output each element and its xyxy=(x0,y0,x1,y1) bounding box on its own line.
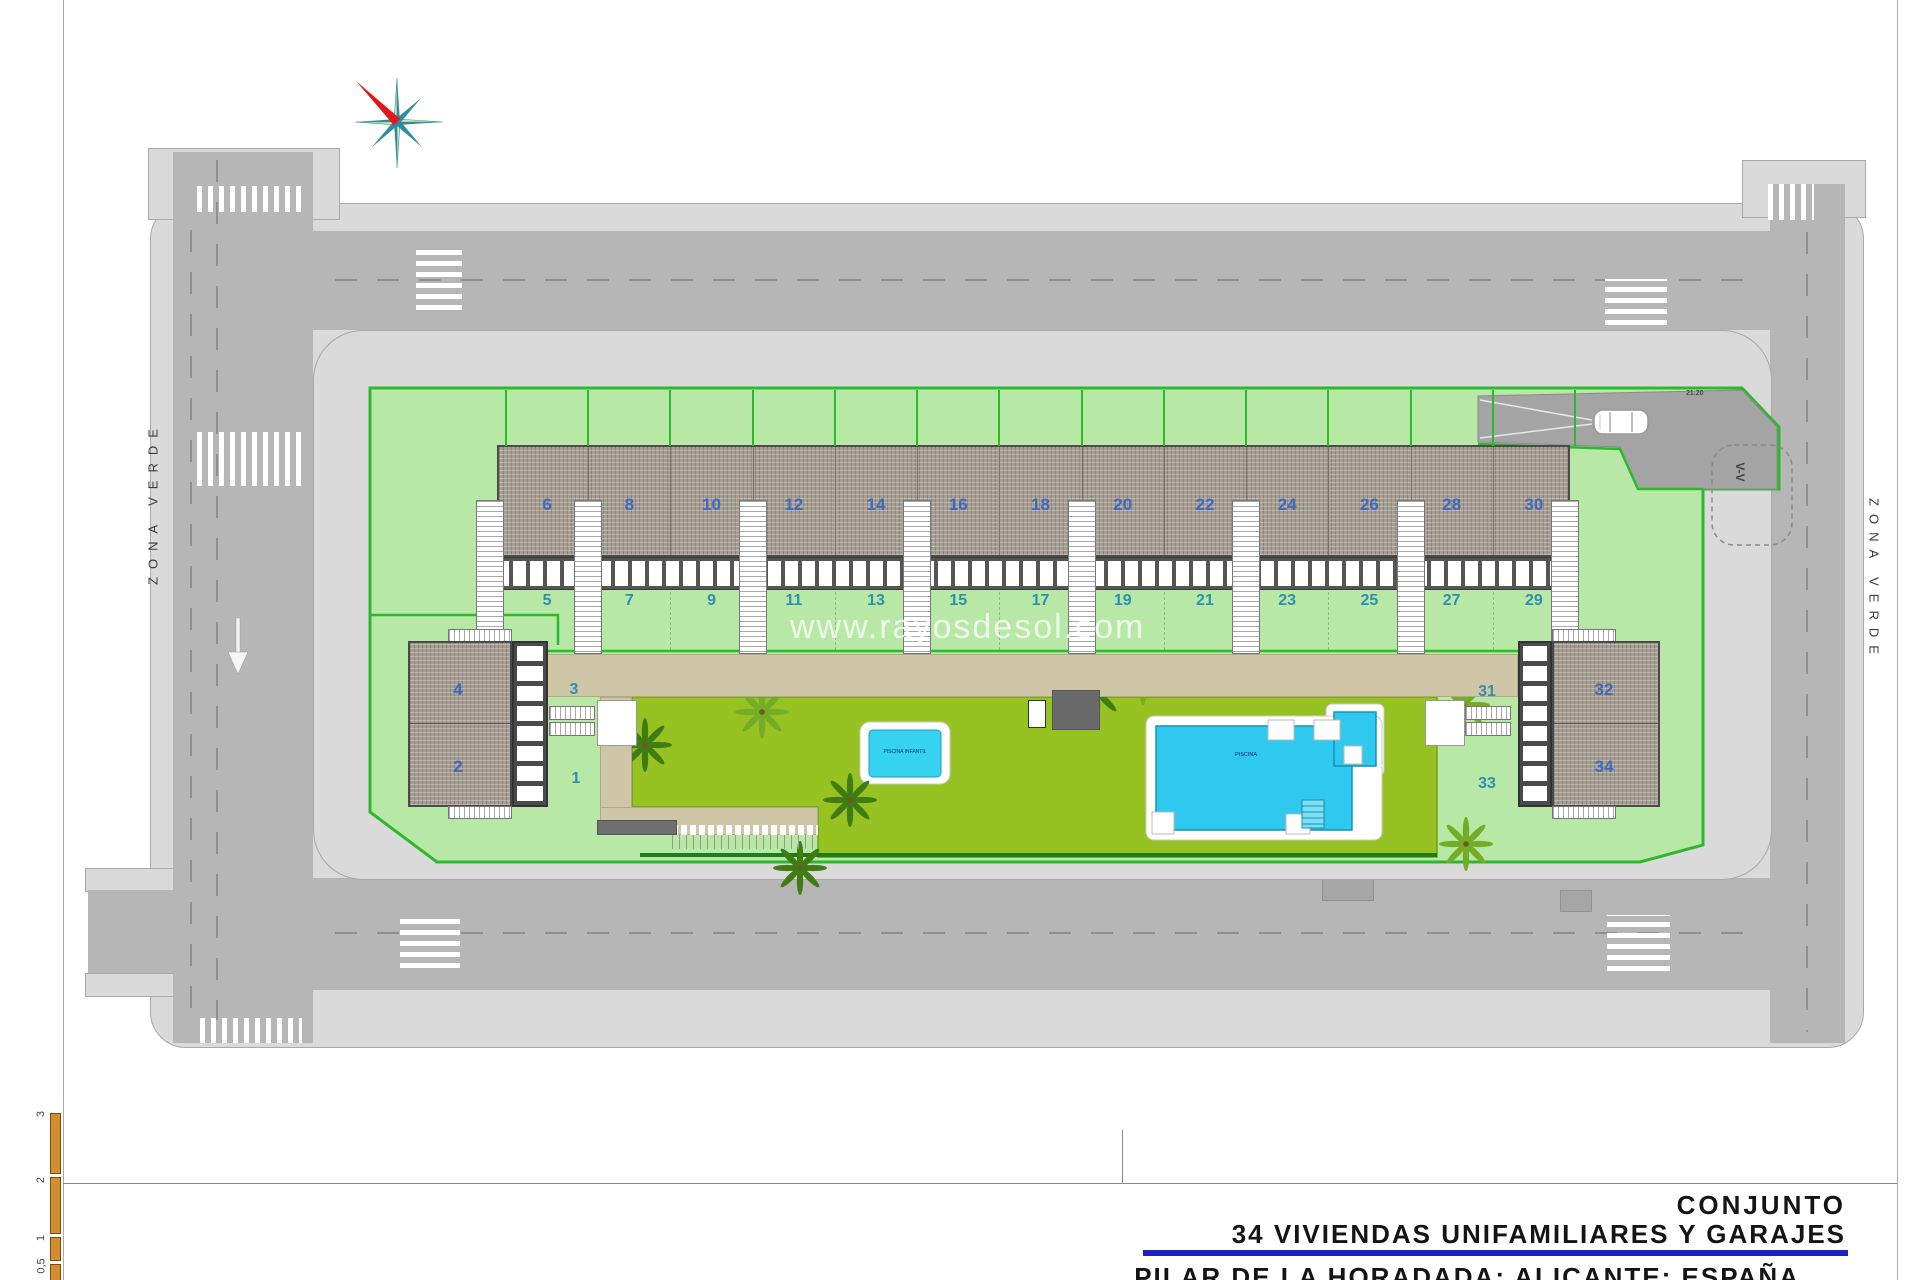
car-icon xyxy=(1594,410,1648,434)
palm-tree-icon xyxy=(1439,817,1493,871)
canopy-structure xyxy=(597,820,677,835)
parcel-number: 33 xyxy=(1478,775,1496,793)
unit-number: 32 xyxy=(1595,680,1614,700)
page-border-left xyxy=(63,0,64,1280)
compass-rose-icon xyxy=(353,78,443,168)
parcel-number: 1 xyxy=(572,770,581,788)
palm-tree-icon xyxy=(823,773,877,827)
shower-box xyxy=(1028,700,1046,728)
terrace-cells xyxy=(496,561,1572,586)
pool-large-label: PISCINA xyxy=(1235,752,1257,758)
section-marker-label: V-V xyxy=(1733,462,1747,481)
title-line-3: PILAR DE LA HORADADA; ALICANTE; ESPAÑA xyxy=(1134,1262,1800,1280)
stairs-left-block-bottom xyxy=(448,806,512,819)
direction-arrow-icon xyxy=(228,618,248,674)
building-right-block xyxy=(1552,641,1660,807)
building-left-divider xyxy=(410,723,510,724)
scale-segment xyxy=(50,1264,61,1280)
scale-label: 1 xyxy=(35,1235,47,1241)
garage-cells xyxy=(1523,646,1547,802)
scale-label: 3 xyxy=(35,1111,47,1117)
site-plan-canvas: 6810121416182022242628305791113151719212… xyxy=(0,0,1920,1280)
pool-large xyxy=(1146,704,1384,840)
scale-segment xyxy=(50,1113,61,1174)
unit-number: 4 xyxy=(453,680,462,700)
palm-tree-icon xyxy=(773,841,827,895)
service-structure xyxy=(1052,690,1100,730)
landing-right-block xyxy=(1425,700,1465,746)
parking-markers-row xyxy=(672,825,818,835)
stairs-left-block-mid-2 xyxy=(549,722,595,736)
landing-left-block xyxy=(597,700,637,746)
fence-ticks xyxy=(672,835,818,849)
parcel-number: 3 xyxy=(570,681,579,699)
scale-segment xyxy=(50,1237,61,1261)
building-right-divider xyxy=(1554,723,1658,724)
stairs-left-block-mid-1 xyxy=(549,706,595,720)
walkway-central xyxy=(547,654,1518,697)
title-block-vline xyxy=(1122,1130,1123,1183)
scale-segment xyxy=(50,1177,61,1234)
title-line-1: CONJUNTO xyxy=(1677,1190,1846,1221)
pool-small-label: PISCINA INFANTIL xyxy=(873,749,937,756)
zona-verde-left-label: ZONA VERDE xyxy=(146,421,161,585)
ramp-level-label: 21.20 xyxy=(1686,390,1704,397)
scale-label: 0,5 xyxy=(36,1258,48,1273)
garage-cells xyxy=(517,646,543,802)
title-line-2: 34 VIVIENDAS UNIFAMILIARES Y GARAJES xyxy=(1232,1219,1846,1250)
building-left-block xyxy=(408,641,512,807)
unit-number: 34 xyxy=(1595,757,1614,777)
stairs-right-block-mid-1 xyxy=(1465,706,1511,720)
scale-label: 2 xyxy=(35,1177,47,1183)
garage-strip-left-block xyxy=(512,641,548,807)
title-separator-line xyxy=(63,1183,1897,1184)
unit-number: 2 xyxy=(453,757,462,777)
building-row-top xyxy=(497,445,1570,557)
watermark: www.rayosdesol.com xyxy=(790,608,1145,647)
title-underline xyxy=(1143,1250,1848,1256)
stairs-right-block-mid-2 xyxy=(1465,722,1511,736)
page-border-right xyxy=(1897,0,1898,1280)
parcel-number: 31 xyxy=(1478,683,1496,701)
zona-verde-right-label: ZONA VERDE xyxy=(1867,498,1882,662)
terrace-strip-top xyxy=(493,557,1575,590)
pool-steps xyxy=(1302,800,1324,828)
stairs-right-block-bottom xyxy=(1552,806,1616,819)
garage-strip-right-block xyxy=(1518,641,1552,807)
